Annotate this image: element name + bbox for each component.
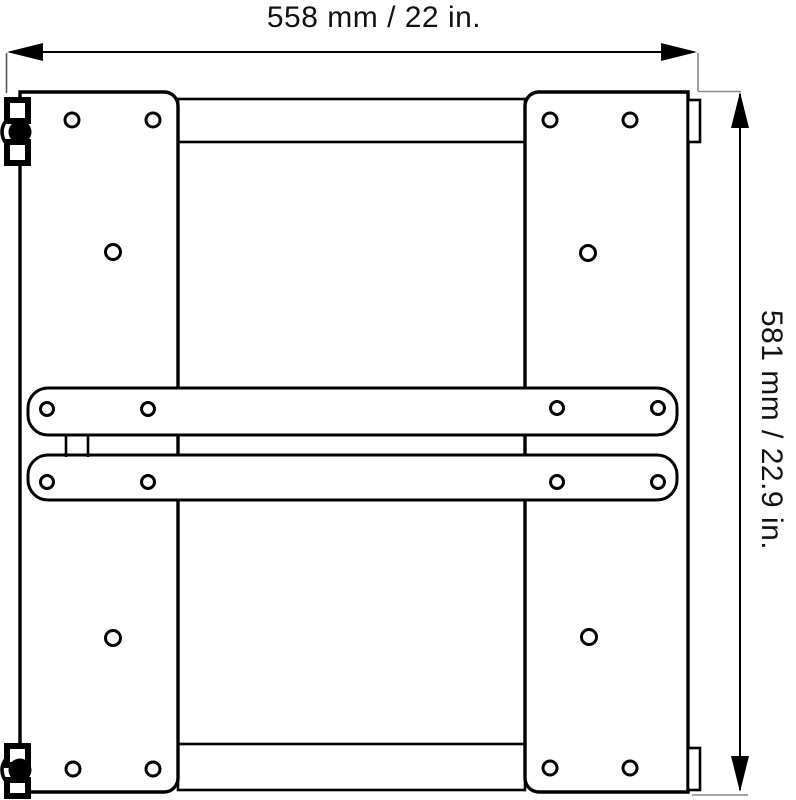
mounting-hole bbox=[146, 762, 160, 776]
lower-crossbar bbox=[28, 455, 677, 500]
technical-drawing-canvas: 558 mm / 22 in. 581 mm / 22.9 in. bbox=[0, 0, 796, 800]
mounting-hole bbox=[543, 761, 557, 775]
arrowhead-down-icon bbox=[731, 756, 749, 792]
mounting-hole bbox=[41, 403, 54, 416]
mounting-hole bbox=[146, 113, 160, 127]
hinge-square-icon bbox=[7, 142, 28, 163]
mounting-hole bbox=[582, 630, 597, 645]
right-tab-top bbox=[688, 100, 700, 142]
hinge-square-icon bbox=[7, 780, 28, 796]
mounting-hole bbox=[106, 631, 121, 646]
mounting-hole bbox=[652, 476, 665, 489]
left-mounting-plate bbox=[20, 92, 178, 792]
mounting-hole bbox=[41, 476, 54, 489]
upper-crossbar bbox=[28, 388, 677, 435]
bracket-drawing bbox=[0, 0, 796, 800]
right-mounting-plate bbox=[525, 92, 688, 792]
mounting-hole bbox=[551, 402, 564, 415]
hinge-detail-top bbox=[2, 100, 31, 163]
height-dimension-label: 581 mm / 22.9 in. bbox=[754, 310, 788, 550]
width-dimension-label: 558 mm / 22 in. bbox=[267, 1, 481, 35]
arrowhead-up-icon bbox=[731, 92, 749, 128]
mounting-hole bbox=[581, 246, 596, 261]
hinge-square-icon bbox=[7, 100, 28, 121]
bottom-rail bbox=[178, 744, 525, 790]
hinge-detail-bottom bbox=[2, 746, 32, 796]
mounting-hole bbox=[543, 113, 557, 127]
top-rail bbox=[178, 99, 525, 142]
mounting-hole bbox=[623, 113, 637, 127]
height-dimension-line bbox=[692, 92, 749, 796]
right-tab-bottom bbox=[688, 748, 700, 790]
mounting-hole bbox=[551, 476, 564, 489]
mounting-hole bbox=[142, 403, 155, 416]
arrowhead-left-icon bbox=[7, 43, 43, 61]
mounting-hole bbox=[65, 113, 79, 127]
width-dimension-line bbox=[7, 43, 699, 93]
mounting-hole bbox=[623, 761, 637, 775]
arrowhead-right-icon bbox=[661, 43, 697, 61]
mounting-hole bbox=[142, 476, 155, 489]
mounting-hole bbox=[66, 762, 80, 776]
mounting-hole bbox=[652, 402, 665, 415]
mounting-hole bbox=[106, 245, 121, 260]
